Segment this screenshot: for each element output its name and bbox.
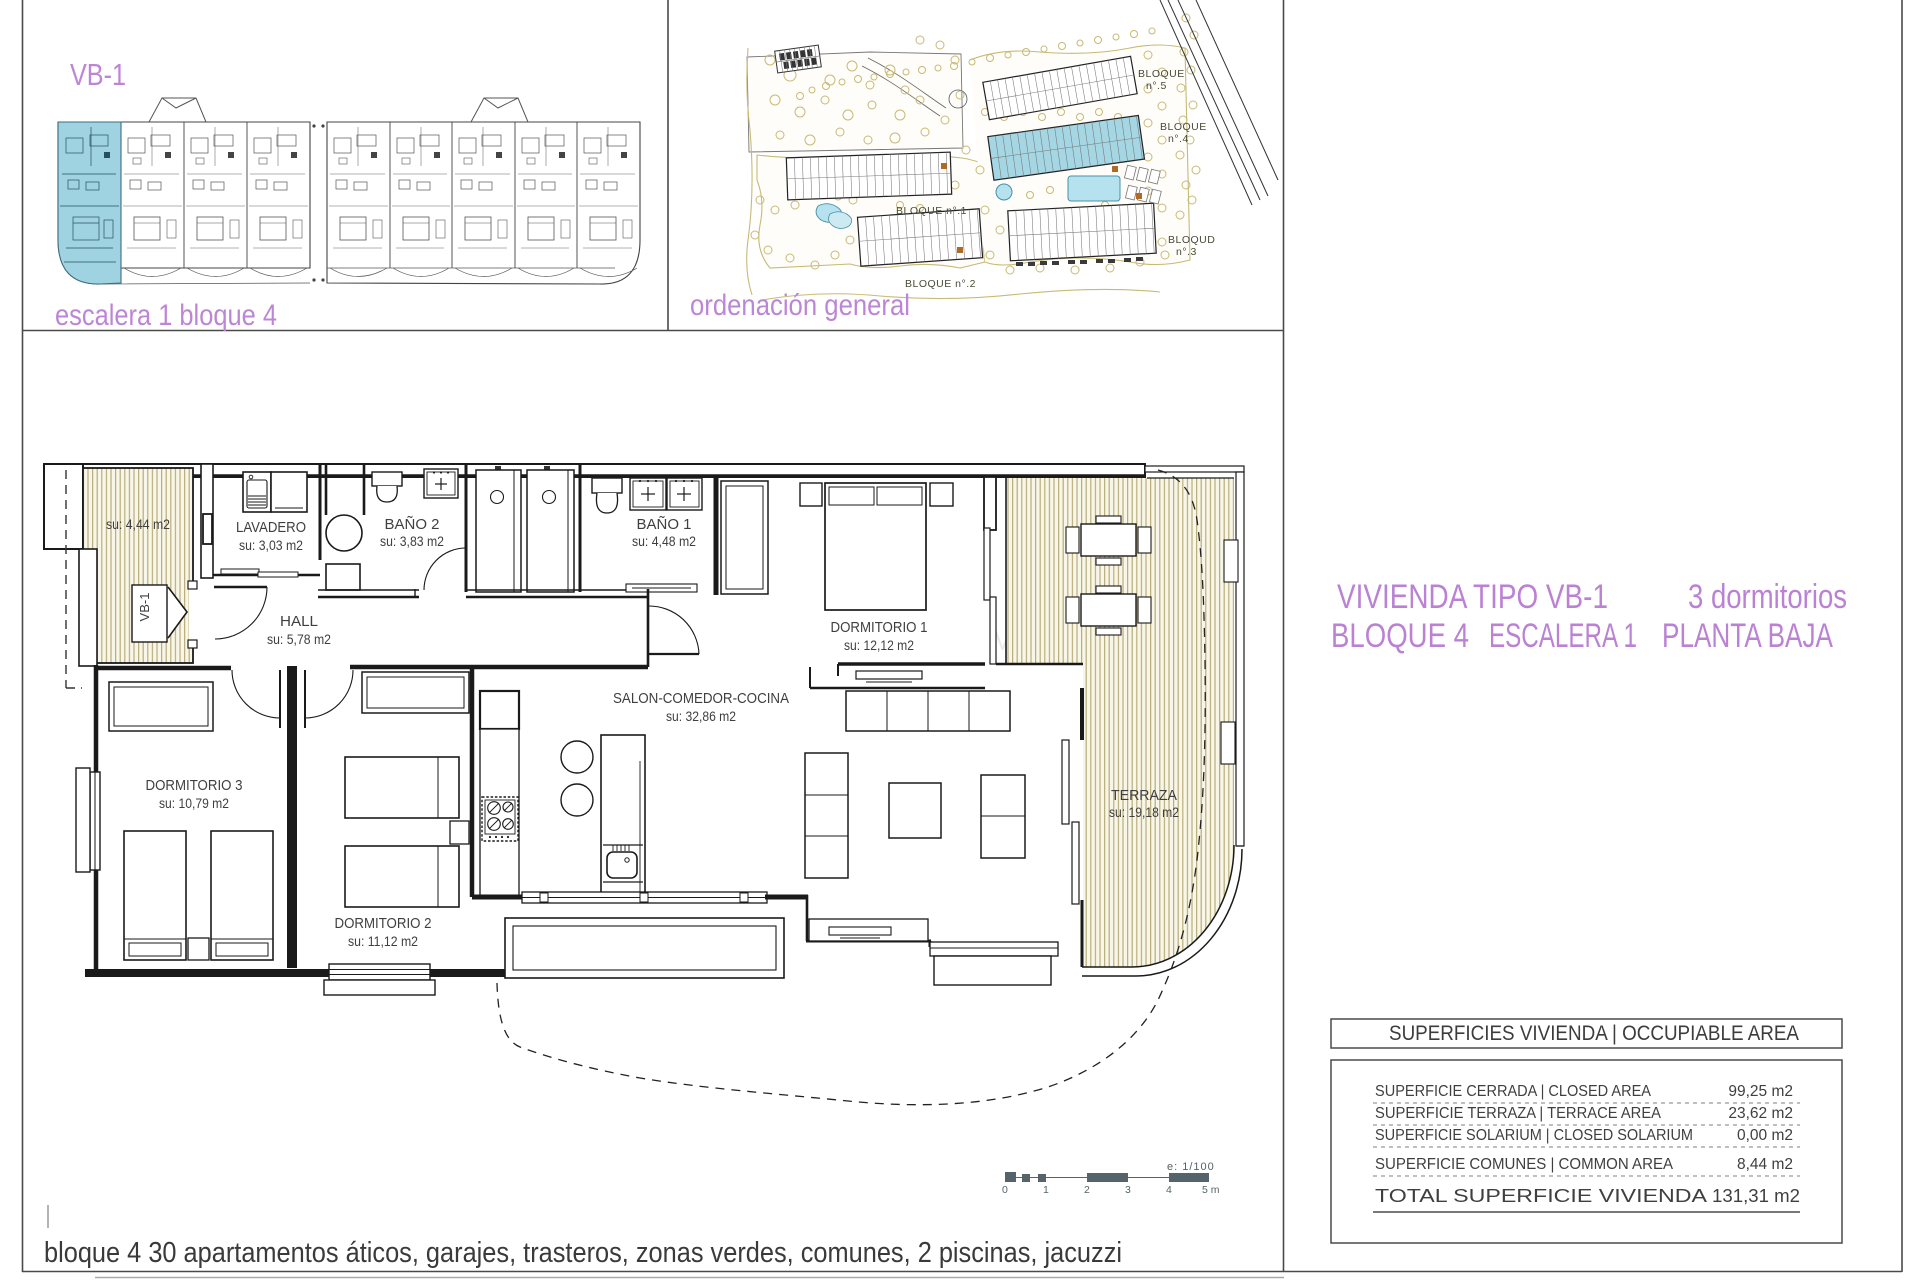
svg-text:n°.5: n°.5: [1146, 80, 1167, 92]
svg-text:TOTAL SUPERFICIE VIVIENDA: TOTAL SUPERFICIE VIVIENDA: [1375, 1185, 1708, 1206]
svg-text:su: 19,18 m2: su: 19,18 m2: [1109, 805, 1179, 820]
svg-text:su: 4,48 m2: su: 4,48 m2: [632, 534, 696, 549]
svg-text:n°.4: n°.4: [1168, 133, 1189, 145]
svg-text:VB-1: VB-1: [70, 57, 126, 92]
svg-text:4: 4: [1166, 1184, 1172, 1196]
svg-text:su: 3,83 m2: su: 3,83 m2: [380, 534, 444, 549]
svg-text:DORMITORIO 1: DORMITORIO 1: [831, 619, 928, 636]
svg-text:8,44 m2: 8,44 m2: [1737, 1156, 1793, 1173]
svg-text:ESCALERA 1: ESCALERA 1: [1489, 617, 1637, 655]
svg-text:5 m: 5 m: [1202, 1184, 1220, 1196]
svg-text:SALON-COMEDOR-COCINA: SALON-COMEDOR-COCINA: [613, 690, 789, 707]
svg-text:SUPERFICIE CERRADA | CLOSED: SUPERFICIE CERRADA | CLOSED AREA: [1375, 1083, 1652, 1100]
svg-text:SUPERFICIE COMUNES | COMMON A: SUPERFICIE COMUNES | COMMON AREA: [1375, 1156, 1674, 1173]
svg-text:SUPERFICIES VIVIENDA | OCCUPIA: SUPERFICIES VIVIENDA | OCCUPIABLE AREA: [1389, 1022, 1799, 1045]
svg-text:3: 3: [1125, 1184, 1131, 1196]
svg-text:su: 32,86 m2: su: 32,86 m2: [666, 709, 736, 724]
svg-text:BLOQUE n°.2: BLOQUE n°.2: [905, 278, 976, 290]
svg-text:su: 5,78 m2: su: 5,78 m2: [267, 632, 331, 647]
svg-text:99,25 m2: 99,25 m2: [1728, 1083, 1793, 1100]
svg-text:23,62 m2: 23,62 m2: [1728, 1105, 1793, 1122]
svg-text:SUPERFICIE SOLARIUM | CLOSED: SUPERFICIE SOLARIUM | CLOSED SOLARIUM: [1375, 1127, 1693, 1144]
svg-text:n°.3: n°.3: [1176, 246, 1197, 258]
svg-text:su: 11,12 m2: su: 11,12 m2: [348, 934, 418, 949]
svg-text:VIVIENDA TIPO VB-1: VIVIENDA TIPO VB-1: [1337, 578, 1608, 616]
svg-text:HALL: HALL: [280, 613, 318, 630]
svg-text:LAVADERO: LAVADERO: [236, 519, 306, 536]
svg-text:BLOQUE: BLOQUE: [1160, 121, 1207, 133]
svg-text:TERRAZA: TERRAZA: [1111, 787, 1177, 804]
svg-text:su: 12,12 m2: su: 12,12 m2: [844, 638, 914, 653]
svg-text:BAÑO 1: BAÑO 1: [637, 516, 692, 533]
svg-text:DORMITORIO 2: DORMITORIO 2: [335, 915, 432, 932]
svg-text:BLOQUE: BLOQUE: [1138, 68, 1185, 80]
svg-text:0: 0: [1002, 1184, 1008, 1196]
svg-text:2: 2: [1084, 1184, 1090, 1196]
svg-text:e: 1/100: e: 1/100: [1167, 1161, 1215, 1173]
svg-text:ordenación general: ordenación general: [690, 289, 910, 322]
svg-text:su: 3,03 m2: su: 3,03 m2: [239, 538, 303, 553]
svg-text:3 dormitorios: 3 dormitorios: [1688, 578, 1847, 616]
svg-text:VB-1: VB-1: [137, 593, 152, 622]
svg-text:1: 1: [1043, 1184, 1049, 1196]
svg-text:su: 4,44 m2: su: 4,44 m2: [106, 517, 170, 532]
svg-text:BAÑO 2: BAÑO 2: [385, 516, 440, 533]
svg-text:PLANTA BAJA: PLANTA BAJA: [1662, 617, 1833, 655]
svg-text:0,00 m2: 0,00 m2: [1737, 1127, 1793, 1144]
svg-text:SUPERFICIE TERRAZA | TERRA: SUPERFICIE TERRAZA | TERRACE AREA: [1375, 1105, 1662, 1122]
svg-text:BLOQUD: BLOQUD: [1168, 234, 1215, 246]
svg-text:131,31 m2: 131,31 m2: [1712, 1185, 1800, 1206]
svg-text:BLOQUE 4: BLOQUE 4: [1331, 617, 1469, 655]
svg-text:escalera 1 bloque 4: escalera 1 bloque 4: [55, 299, 277, 332]
svg-text:bloque 4 30 apartamentos ático: bloque 4 30 apartamentos áticos, garajes…: [44, 1237, 1122, 1269]
svg-text:BLOQUE n°.1: BLOQUE n°.1: [896, 205, 967, 217]
svg-text:DORMITORIO 3: DORMITORIO 3: [146, 777, 243, 794]
svg-text:su: 10,79 m2: su: 10,79 m2: [159, 796, 229, 811]
